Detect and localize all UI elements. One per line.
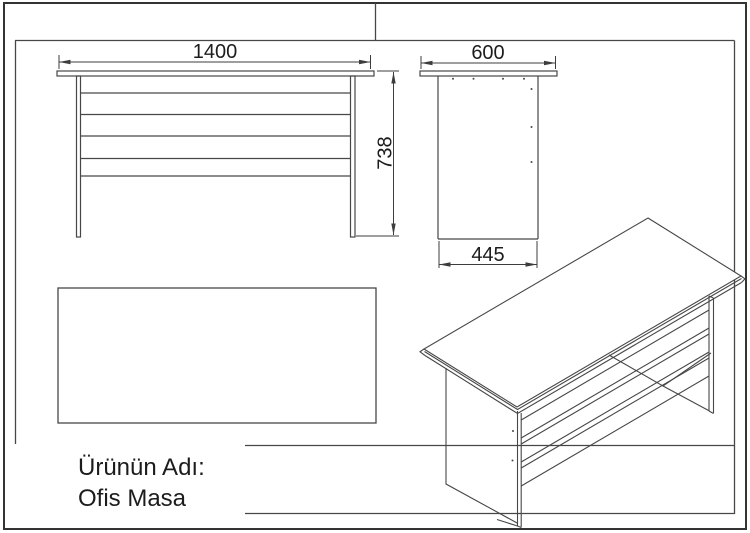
side-panel-depth-dimension-label: 445 [471, 244, 504, 266]
product-name-value: Ofis Masa [78, 485, 187, 512]
side-desktop-slab [420, 71, 557, 76]
front-view-dimensions [59, 55, 399, 236]
top-view [58, 288, 376, 423]
drawing-canvas: 1400 738 600 445 [0, 0, 750, 533]
front-left-leg [77, 76, 81, 237]
front-back-slats [81, 93, 351, 176]
product-name-label: Ürünün Adı: [78, 454, 205, 481]
iso-back-leg [709, 296, 714, 414]
front-width-dimension-label: 1400 [193, 41, 238, 63]
side-view [420, 71, 557, 239]
front-desktop-slab [57, 71, 374, 76]
iso-corner-right [741, 276, 745, 283]
screw-marks [452, 78, 533, 163]
side-view-dimensions [421, 56, 556, 268]
title-block: Ürünün Adı: Ofis Masa [78, 454, 205, 512]
top-view-desktop [58, 288, 376, 423]
iso-corner-left [420, 349, 425, 356]
front-view [57, 71, 374, 237]
drawing-sheet: 1400 738 600 445 [0, 0, 750, 533]
front-height-dimension-label: 738 [375, 136, 397, 169]
iso-side-support [609, 353, 711, 411]
front-right-leg [351, 76, 356, 237]
side-depth-dimension-label: 600 [471, 42, 504, 64]
